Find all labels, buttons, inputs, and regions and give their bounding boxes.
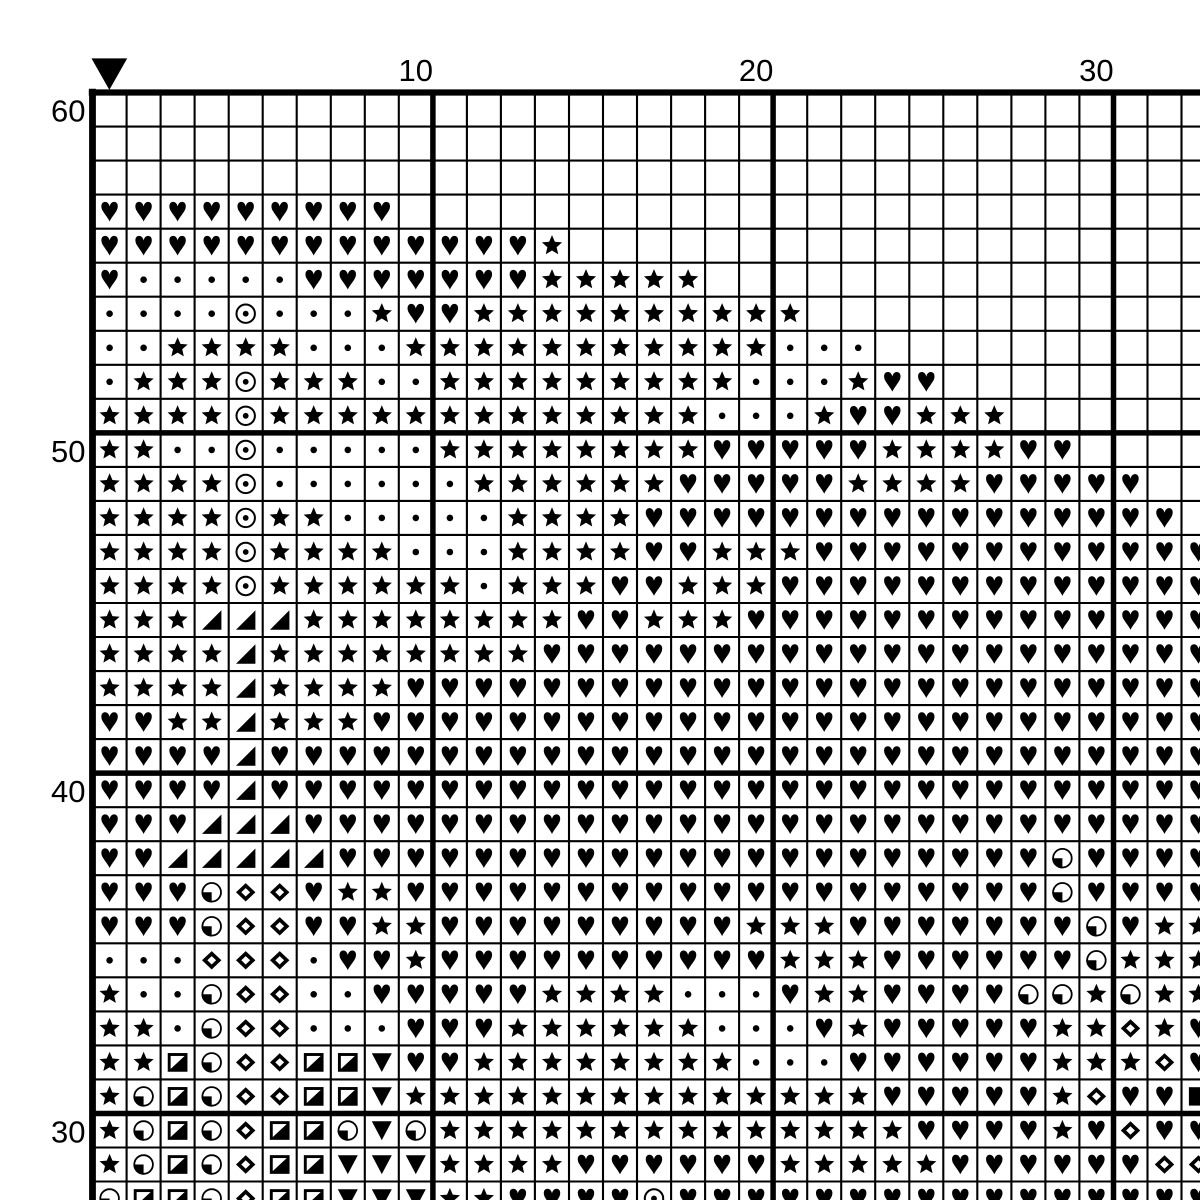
svg-text:20: 20 <box>739 53 773 88</box>
svg-text:40: 40 <box>51 774 85 809</box>
svg-text:30: 30 <box>51 1114 85 1149</box>
svg-text:60: 60 <box>51 94 85 129</box>
svg-text:50: 50 <box>51 434 85 469</box>
svg-text:10: 10 <box>399 53 433 88</box>
svg-text:30: 30 <box>1079 53 1113 88</box>
